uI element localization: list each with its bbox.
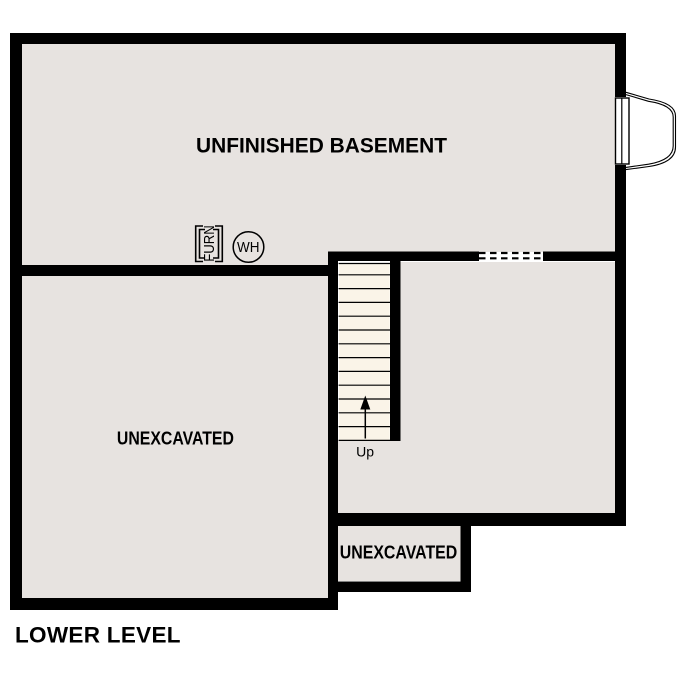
svg-text:UNFINISHED BASEMENT: UNFINISHED BASEMENT xyxy=(196,134,447,158)
svg-text:Up: Up xyxy=(356,444,374,460)
svg-text:LOWER LEVEL: LOWER LEVEL xyxy=(15,623,181,648)
svg-text:UNEXCAVATED: UNEXCAVATED xyxy=(340,543,458,563)
svg-text:WH: WH xyxy=(237,239,260,256)
svg-text:UNEXCAVATED: UNEXCAVATED xyxy=(117,429,234,449)
svg-text:FURN: FURN xyxy=(201,225,218,262)
